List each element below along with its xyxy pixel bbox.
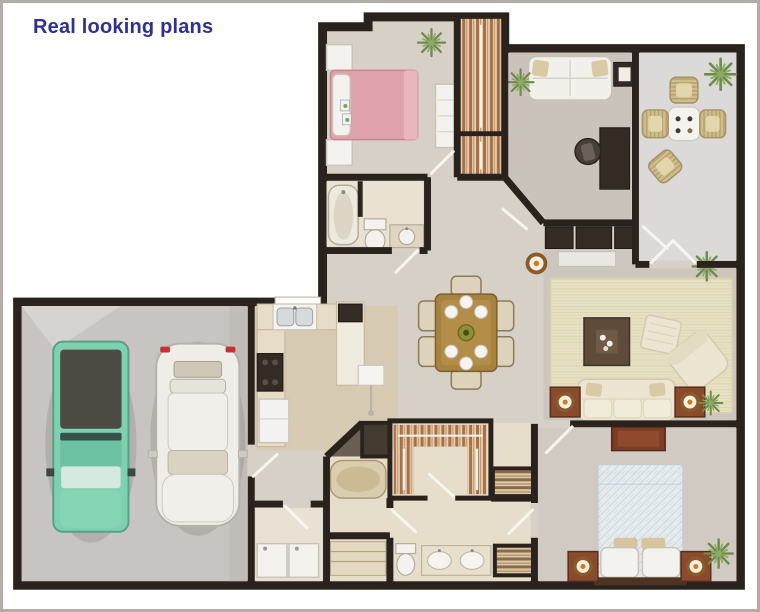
patio-table (668, 107, 700, 141)
entry-closet (362, 423, 390, 457)
towel-shelves (330, 542, 385, 576)
dining-chair (451, 276, 481, 296)
stove (257, 354, 283, 392)
dining-chair (451, 369, 481, 389)
refrigerator (259, 399, 289, 443)
bathtub-basin (333, 192, 353, 240)
toilet-tank (396, 544, 416, 554)
truck-mirror (46, 468, 54, 476)
closet-hall (459, 19, 503, 175)
dryer (289, 544, 319, 578)
nightstand (327, 140, 353, 166)
sink (399, 229, 415, 245)
office-desk (600, 128, 630, 189)
pickup-truck (46, 342, 135, 532)
nightstand (327, 45, 353, 71)
sofa-pillow (649, 382, 666, 396)
toilet-tank (364, 219, 386, 230)
wicker-chair (642, 110, 668, 138)
sofa-pillow (591, 59, 609, 77)
sink (428, 552, 452, 570)
sink (460, 552, 484, 570)
potted-plant (699, 391, 722, 414)
taillight (226, 347, 236, 353)
pillow (642, 548, 680, 578)
table-lamp (686, 557, 706, 577)
potted-plant (418, 29, 445, 56)
truck-mirror (128, 468, 136, 476)
washer (257, 544, 287, 578)
tv-cabinet (615, 227, 634, 249)
table-lamp (680, 392, 700, 412)
framed-art (619, 67, 631, 81)
linen-closet (493, 468, 535, 496)
sofa-pillow (531, 59, 549, 77)
sedan-car (148, 344, 247, 526)
toilet (397, 554, 415, 576)
taillight (160, 347, 170, 353)
tv-bench (558, 252, 615, 267)
car-mirror (238, 451, 247, 458)
linen-closet (495, 546, 535, 576)
potted-plant (508, 69, 534, 95)
floor-plan-image (3, 3, 757, 609)
car-mirror (148, 451, 157, 458)
floor-lamp (358, 365, 384, 385)
potted-plant (704, 539, 732, 567)
wicker-chair (670, 77, 698, 103)
tv-cabinet (576, 227, 612, 249)
table-lamp (555, 392, 575, 412)
bed-fold (404, 70, 418, 139)
tv-cabinet (545, 227, 573, 249)
countertop-appliance (338, 304, 362, 322)
tub-basin (336, 466, 380, 492)
pillow (601, 548, 639, 578)
floor-plan-page: Real looking plans (0, 0, 760, 612)
potted-plant (705, 59, 736, 90)
wicker-chair (700, 110, 726, 138)
page-title: Real looking plans (33, 16, 213, 39)
table-lamp (573, 557, 593, 577)
sofa-pillow (585, 382, 602, 396)
pendant-lamp (526, 253, 548, 275)
headboard (594, 577, 687, 585)
